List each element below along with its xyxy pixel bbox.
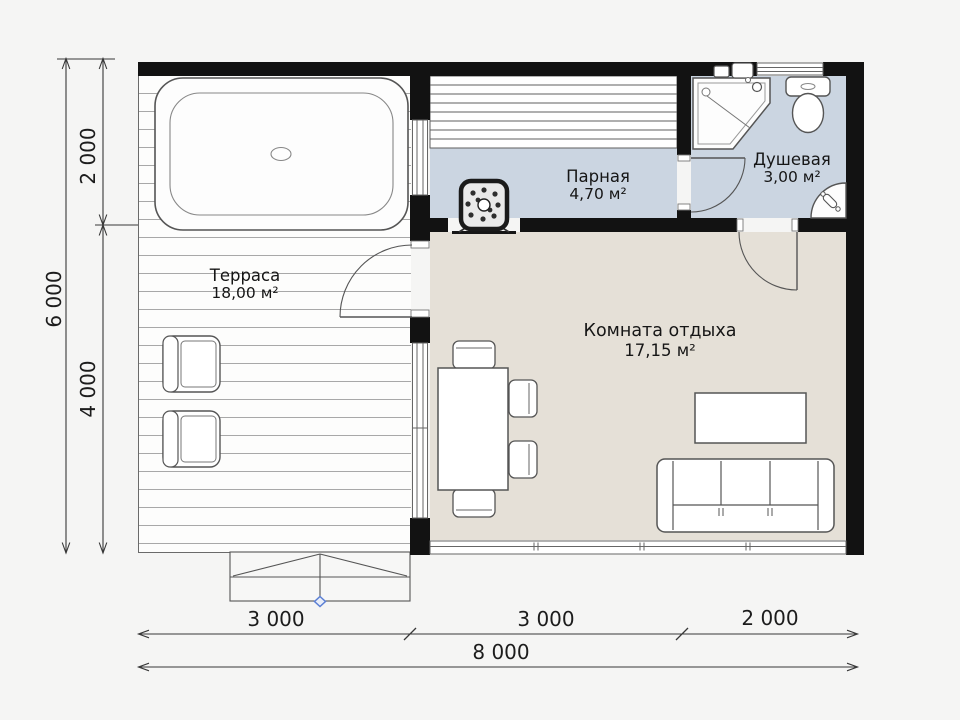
window-lounge-terrace bbox=[412, 343, 428, 518]
wall-mid-d bbox=[410, 518, 430, 555]
dim-bottom-right: 2 000 bbox=[720, 606, 820, 630]
wall-top-left bbox=[138, 62, 757, 76]
steam-room-area: 4,70 м² bbox=[518, 186, 678, 204]
dim-bottom-total: 8 000 bbox=[451, 640, 551, 664]
entrance-steps bbox=[230, 552, 410, 607]
shower-room-label: Душевая 3,00 м² bbox=[712, 150, 872, 187]
wall-south-mid bbox=[520, 218, 737, 232]
sauna-stove bbox=[452, 181, 516, 233]
shower-room-name: Душевая bbox=[712, 150, 872, 169]
dining-table bbox=[438, 341, 537, 517]
coffee-table bbox=[695, 393, 806, 443]
wall-south-right bbox=[798, 218, 846, 232]
wall-steam-shower-top bbox=[677, 62, 691, 155]
toilet bbox=[786, 77, 830, 133]
terrace-area: 18,00 м² bbox=[165, 285, 325, 303]
dim-left-upper: 2 000 bbox=[76, 116, 100, 196]
lounge-name: Комната отдыха bbox=[560, 321, 760, 341]
terrace-label: Терраса 18,00 м² bbox=[165, 266, 325, 303]
dim-bottom-middle: 3 000 bbox=[496, 607, 596, 631]
dim-left-total: 6 000 bbox=[42, 259, 66, 339]
armchair bbox=[163, 336, 220, 392]
window-steam-terrace bbox=[413, 120, 428, 195]
armchair bbox=[163, 411, 220, 467]
lounge-label: Комната отдыха 17,15 м² bbox=[560, 321, 760, 360]
wall-mid-b bbox=[410, 195, 430, 241]
shower-room-area: 3,00 м² bbox=[712, 169, 872, 187]
wall-steam-shower-bottom bbox=[677, 210, 691, 232]
window-lounge-south bbox=[430, 541, 846, 554]
door-terrace bbox=[340, 245, 412, 317]
wall-south-stub bbox=[430, 218, 448, 232]
steam-room-name: Парная bbox=[518, 167, 678, 186]
floor-plan: Терраса 18,00 м² Парная 4,70 м² Душевая … bbox=[0, 0, 960, 720]
dim-bottom-left: 3 000 bbox=[226, 607, 326, 631]
door-lounge-shower bbox=[739, 232, 797, 290]
wall-mid-a bbox=[410, 76, 430, 120]
steam-room-label: Парная 4,70 м² bbox=[518, 167, 678, 204]
sofa bbox=[657, 459, 834, 532]
terrace-name: Терраса bbox=[165, 266, 325, 285]
sauna-benches bbox=[430, 76, 677, 148]
corner-sink bbox=[811, 183, 846, 218]
dim-left-lower: 4 000 bbox=[76, 349, 100, 429]
wall-right bbox=[846, 62, 864, 555]
lounge-area: 17,15 м² bbox=[560, 341, 760, 360]
wall-mid-c bbox=[410, 317, 430, 343]
hot-tub bbox=[155, 78, 408, 230]
window-top bbox=[757, 63, 823, 75]
